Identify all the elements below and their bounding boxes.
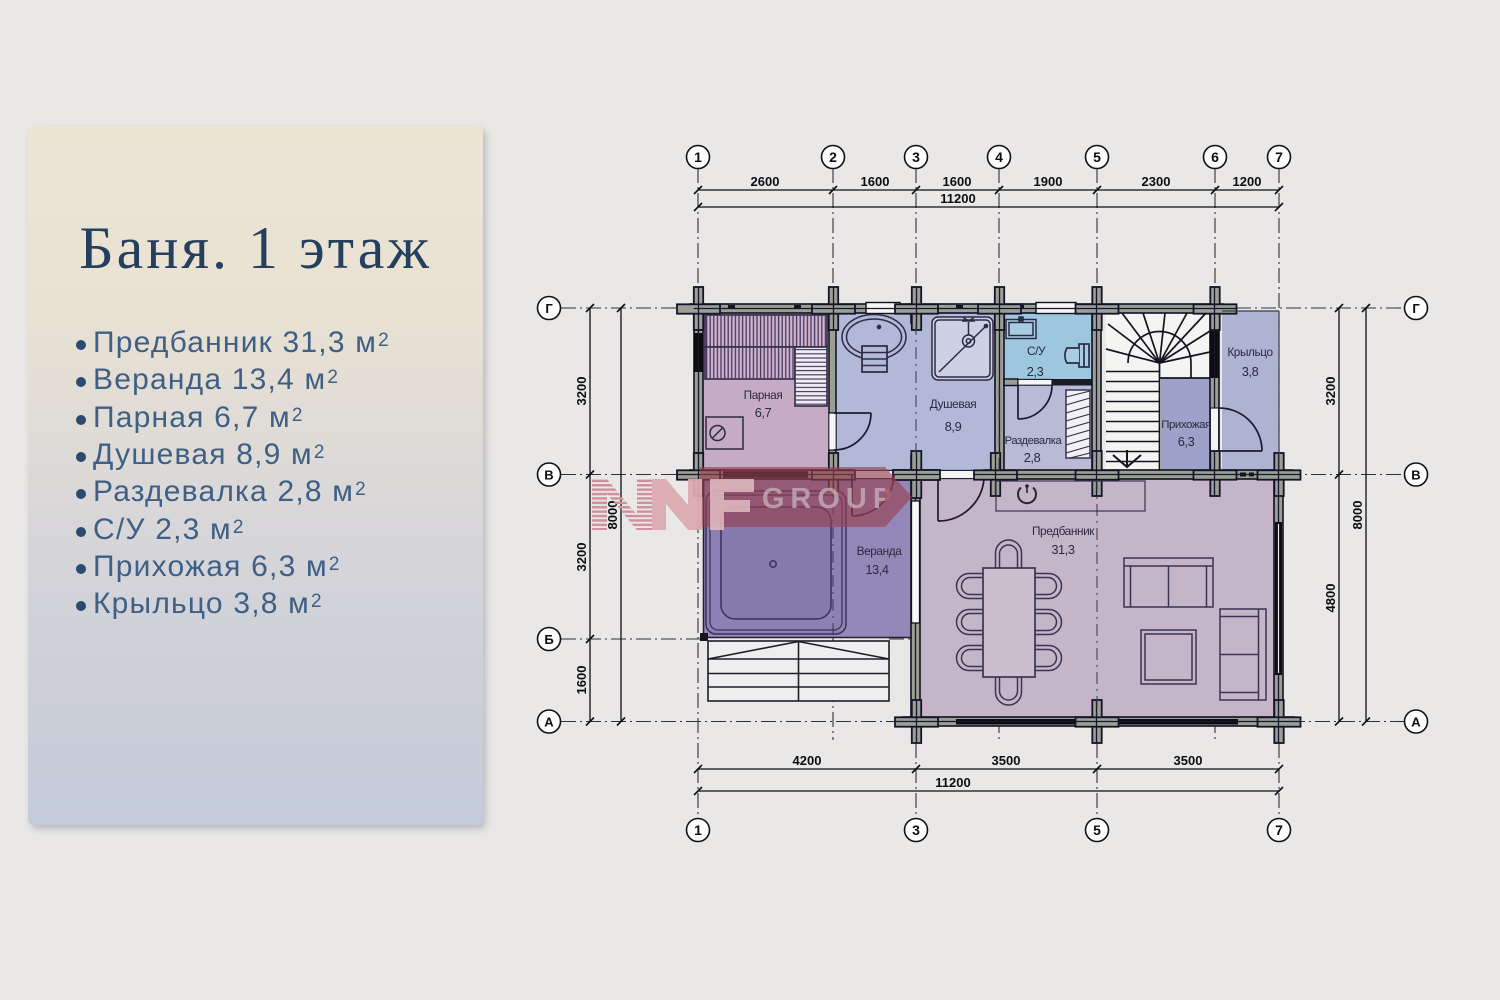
svg-text:Веранда: Веранда (857, 544, 903, 558)
svg-text:3200: 3200 (574, 543, 589, 572)
svg-text:3,8: 3,8 (1242, 364, 1259, 379)
svg-text:Душевая: Душевая (930, 397, 976, 411)
svg-text:4200: 4200 (793, 753, 822, 768)
svg-text:1: 1 (694, 822, 702, 838)
svg-text:1600: 1600 (574, 666, 589, 695)
svg-text:Крыльцо: Крыльцо (1227, 345, 1273, 359)
svg-text:Г: Г (545, 301, 553, 316)
svg-text:7: 7 (1275, 822, 1283, 838)
svg-text:3200: 3200 (574, 377, 589, 406)
svg-text:11200: 11200 (940, 191, 975, 206)
svg-text:Б: Б (544, 632, 553, 647)
svg-text:6,7: 6,7 (755, 405, 772, 420)
svg-text:3: 3 (912, 822, 920, 838)
svg-text:6: 6 (1211, 149, 1219, 165)
svg-text:А: А (1411, 715, 1421, 730)
svg-text:1900: 1900 (1034, 174, 1063, 189)
svg-text:4: 4 (995, 149, 1003, 165)
svg-text:2,8: 2,8 (1024, 450, 1041, 465)
svg-text:7: 7 (1275, 149, 1283, 165)
svg-text:Парная: Парная (744, 388, 783, 402)
svg-text:2600: 2600 (751, 174, 780, 189)
svg-text:Раздевалка: Раздевалка (1005, 435, 1063, 447)
svg-text:2: 2 (829, 149, 837, 165)
svg-text:3: 3 (912, 149, 920, 165)
svg-text:31,3: 31,3 (1051, 542, 1075, 557)
svg-text:4800: 4800 (1323, 584, 1338, 613)
svg-text:3500: 3500 (1174, 753, 1203, 768)
svg-text:А: А (544, 715, 554, 730)
svg-text:6,3: 6,3 (1178, 434, 1195, 449)
svg-text:5: 5 (1093, 149, 1101, 165)
svg-text:2,3: 2,3 (1027, 364, 1044, 379)
svg-text:8000: 8000 (1350, 501, 1365, 530)
svg-text:13,4: 13,4 (865, 562, 889, 577)
svg-text:1200: 1200 (1233, 174, 1262, 189)
svg-text:3500: 3500 (992, 753, 1021, 768)
svg-text:GROUP: GROUP (762, 483, 898, 515)
svg-text:8,9: 8,9 (945, 419, 962, 434)
svg-text:1600: 1600 (861, 174, 890, 189)
svg-text:В: В (544, 468, 553, 483)
svg-text:2300: 2300 (1142, 174, 1171, 189)
svg-text:11200: 11200 (935, 775, 970, 790)
svg-text:Прихожая: Прихожая (1161, 419, 1211, 431)
svg-text:1600: 1600 (943, 174, 972, 189)
svg-text:В: В (1411, 468, 1420, 483)
svg-text:Предбанник: Предбанник (1032, 524, 1095, 538)
svg-text:3200: 3200 (1323, 377, 1338, 406)
svg-text:С/У: С/У (1027, 344, 1046, 358)
svg-text:1: 1 (694, 149, 702, 165)
svg-text:Г: Г (1412, 301, 1420, 316)
svg-text:5: 5 (1093, 822, 1101, 838)
